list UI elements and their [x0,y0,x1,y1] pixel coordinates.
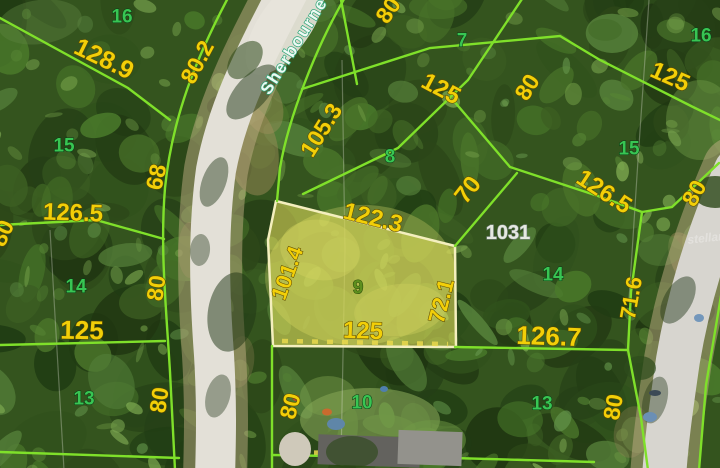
plat-map: 128.980.268126.580125808080105.3122.3101… [0,0,720,468]
dimension-label: 80 [598,392,628,422]
lot-number: 9 [353,278,364,299]
dimension-label: 125 [343,317,384,345]
dimension-label: 126.7 [516,320,582,352]
satellite-map-canvas: 128.980.268126.580125808080105.3122.3101… [0,0,720,468]
lot-number: 16 [690,26,711,47]
house-roof-light [397,430,462,466]
vehicle-orange [322,409,332,416]
dimension-label: 125 [60,315,104,346]
lot-number: 15 [618,139,640,160]
lot-number: 14 [542,265,564,286]
dimension-label: 80 [144,386,173,415]
lot-number: 16 [111,7,132,28]
blue-object [380,386,388,392]
lot-number: 15 [53,136,75,157]
lot-number: 13 [73,389,94,410]
address-labels: 1031 [486,222,531,244]
driveway [279,432,311,466]
road-stain-blue-1 [643,412,657,422]
pool [327,418,345,430]
road-stain-blue-2 [694,314,704,322]
lot-number: 13 [531,394,552,415]
road-mark-dark [649,390,661,396]
lot-number: 10 [351,393,372,414]
address-label: 1031 [486,222,531,244]
lot-number: 7 [457,31,468,52]
lot-number: 14 [65,277,87,298]
dimension-label: 80 [141,274,170,303]
lot-number: 8 [385,147,396,168]
dimension-label: 126.5 [43,198,104,227]
